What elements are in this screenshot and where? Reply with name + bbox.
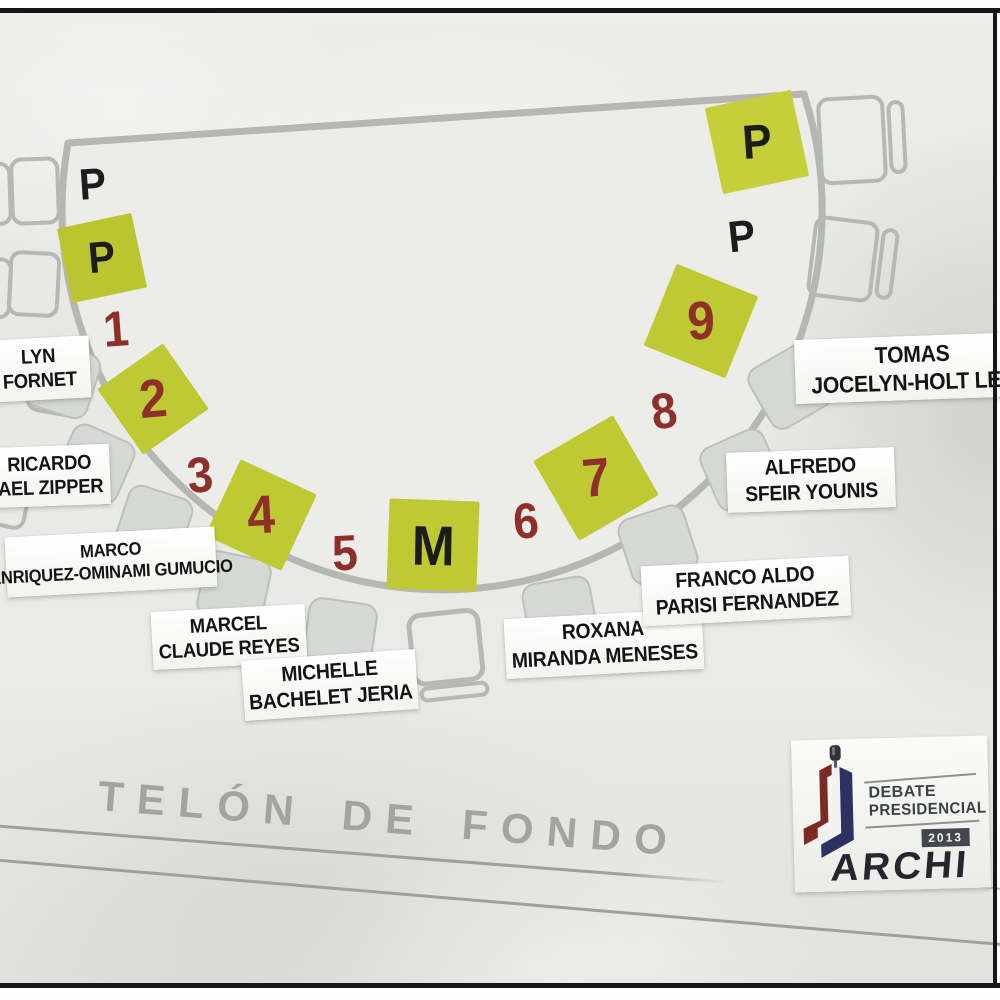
seat-label: M: [411, 512, 455, 578]
press-seat-label: P: [726, 211, 758, 264]
audience-chair-icon: [805, 214, 881, 303]
photo-frame-right: [993, 8, 997, 988]
candidate-label-seat-9: TOMAS JOCELYN-HOLT LET: [794, 332, 1000, 404]
microphone-icon: [830, 745, 841, 761]
candidate-name-line1: LYN: [21, 344, 57, 370]
press-seat-label: P: [77, 159, 107, 211]
candidate-name-line2: BACHELET JERIA: [248, 679, 413, 716]
candidate-name-line2: FORNET: [2, 367, 77, 395]
logo-line2: PRESIDENCIAL: [869, 800, 987, 821]
side-table-icon: [886, 100, 908, 175]
seat-label: 7: [580, 446, 613, 510]
candidate-label-seat-7: FRANCO ALDO PARISI FERNANDEZ: [641, 556, 852, 627]
candidate-label-seat-3: MARCO ENRIQUEZ-OMINAMI GUMUCIO: [5, 527, 218, 598]
candidate-name-line1: RICARDO: [7, 450, 92, 477]
photo-frame-bottom: [0, 983, 1000, 988]
candidate-name-line1: MARCO: [79, 538, 141, 563]
candidate-name-line2: JOCELYN-HOLT LET: [811, 364, 1000, 399]
candidate-name-line1: ALFREDO: [764, 453, 856, 482]
photo-frame-top: [0, 8, 1000, 13]
audience-chair-icon: [6, 250, 61, 319]
moderator-seat-green: M: [386, 498, 479, 591]
candidate-name-line2: MIRANDA MENESES: [511, 639, 698, 674]
candidate-label-seat-5: MICHELLE BACHELET JERIA: [241, 649, 419, 721]
press-seat-green: P: [57, 213, 147, 303]
candidate-label-seat-1: LYN FORNET: [0, 335, 92, 402]
seat-label: 4: [246, 483, 277, 546]
candidate-name-line2: SFEIR YOUNIS: [745, 478, 878, 508]
audience-chair-icon: [816, 94, 889, 185]
logo-line1: DEBATE: [868, 783, 936, 803]
candidate-label-seat-2: RICARDO AEL ZIPPER: [0, 444, 111, 508]
candidate-label-seat-8: ALFREDO SFEIR YOUNIS: [726, 447, 896, 513]
seat-label: 2: [137, 367, 170, 431]
audience-chair-icon: [9, 156, 61, 226]
seat-label: 9: [686, 290, 716, 353]
seat-label: P: [86, 232, 117, 284]
podium-left-shape: [802, 764, 834, 845]
press-seat-green: P: [705, 90, 809, 194]
logo-org-name: ARCHI: [829, 844, 970, 891]
moderator-chair-icon: [405, 607, 486, 688]
seat-1-label: 1: [101, 299, 131, 359]
seat-6-label: 6: [511, 491, 541, 551]
candidate-name-line2: ENRIQUEZ-OMINAMI GUMUCIO: [0, 556, 233, 591]
debate-logo-sticker: DEBATE PRESIDENCIAL 2013 ARCHI: [791, 735, 991, 892]
seat-5-label: 5: [331, 523, 360, 582]
candidate-name-line1: TOMAS: [874, 339, 950, 370]
candidate-name-line2: AEL ZIPPER: [0, 474, 103, 502]
seat-label: P: [740, 114, 773, 171]
